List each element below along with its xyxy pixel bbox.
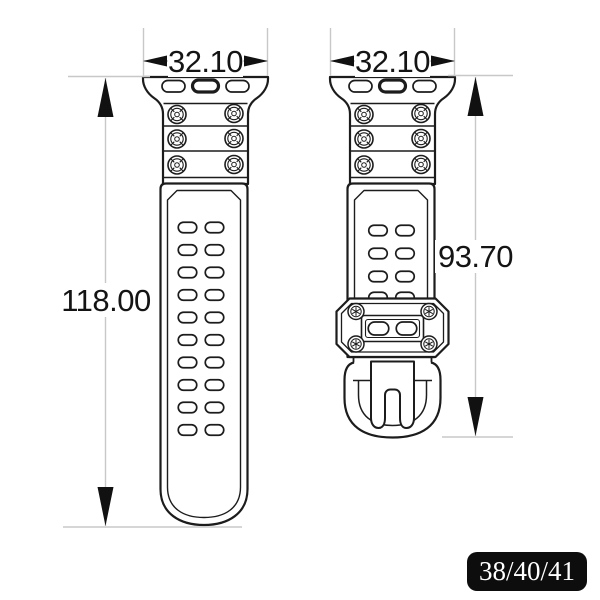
strap-hole <box>369 225 388 236</box>
dim-arrow-left-icon <box>143 56 167 67</box>
strap-hole <box>205 357 224 368</box>
strap-hole <box>205 380 224 391</box>
strap-hole <box>396 225 415 236</box>
dim-arrow-right-icon <box>244 56 268 67</box>
right-lug-slot-2 <box>380 80 406 92</box>
left-strap-body <box>161 184 248 526</box>
right-lug-slot-3 <box>413 81 436 93</box>
left-strap-width-label: 32.10 <box>168 44 243 79</box>
strap-hole <box>396 271 415 282</box>
right-strap-width-label: 32.10 <box>355 44 430 79</box>
left-lug-slot-1 <box>162 81 185 93</box>
strap-hole <box>178 290 197 301</box>
dim-arrow-down-icon <box>98 487 114 526</box>
size-badge: 38/40/41 <box>467 552 587 591</box>
strap-hole <box>178 425 197 436</box>
strap-hole <box>205 245 224 256</box>
right-strap-length-label: 93.70 <box>438 239 513 274</box>
dim-arrow-up-icon <box>98 78 114 117</box>
strap-hole <box>178 402 197 413</box>
strap-hole <box>205 402 224 413</box>
product-dimension-diagram: 32.10 32.10 118.00 93.70 38/40/41 <box>0 0 600 600</box>
strap-hole <box>178 312 197 323</box>
strap-hole <box>178 222 197 233</box>
strap-hole <box>205 335 224 346</box>
left-strap-view <box>143 77 268 525</box>
dim-arrow-left-icon <box>330 56 354 67</box>
left-width-dimension: 32.10 <box>143 28 268 79</box>
strap-hole <box>178 335 197 346</box>
left-strap-length-label: 118.00 <box>61 283 151 318</box>
strap-hole <box>369 271 388 282</box>
right-strap-keeper <box>337 299 449 358</box>
strap-hole <box>205 222 224 233</box>
dim-arrow-up-icon <box>468 77 484 116</box>
strap-hole <box>205 312 224 323</box>
strap-hole <box>396 248 415 259</box>
strap-drawing-canvas: 32.10 32.10 118.00 93.70 <box>0 0 600 600</box>
dim-arrow-right-icon <box>431 56 455 67</box>
strap-hole <box>178 380 197 391</box>
strap-hole <box>205 290 224 301</box>
strap-hole <box>178 357 197 368</box>
strap-hole <box>369 248 388 259</box>
right-length-dimension: 93.70 <box>435 76 516 438</box>
dim-arrow-down-icon <box>468 397 484 436</box>
right-strap-buckle <box>345 357 441 438</box>
left-lug-slot-2 <box>193 80 219 92</box>
left-lug-slot-3 <box>226 81 249 93</box>
strap-hole <box>178 267 197 278</box>
strap-hole <box>178 245 197 256</box>
right-width-dimension: 32.10 <box>330 28 455 79</box>
strap-hole <box>205 425 224 436</box>
right-lug-slot-1 <box>349 81 372 93</box>
strap-hole <box>205 267 224 278</box>
